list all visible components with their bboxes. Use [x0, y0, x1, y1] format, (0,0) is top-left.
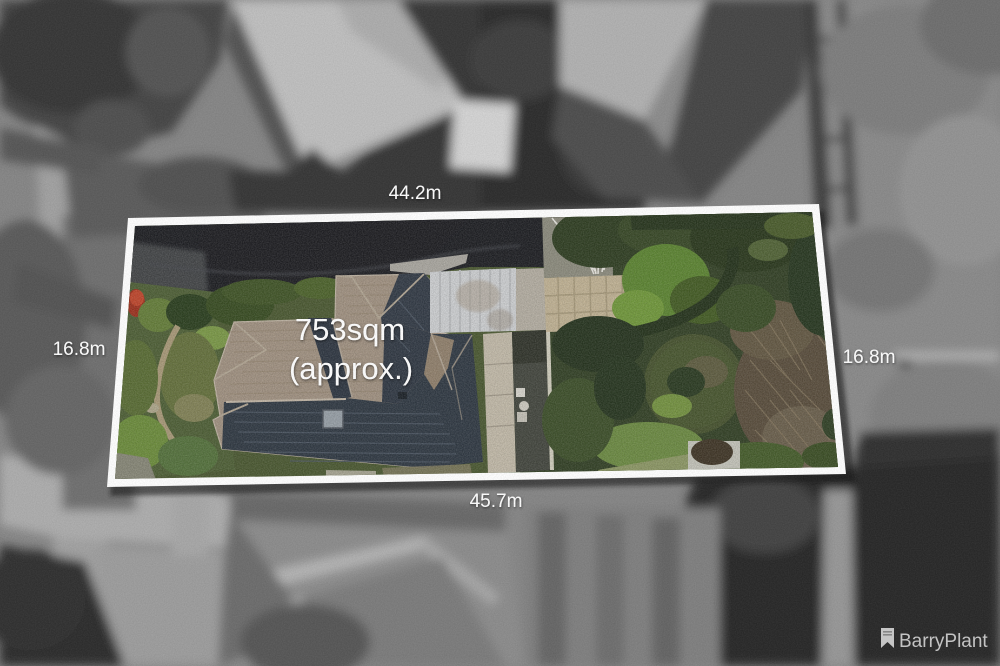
svg-text:BarryPlant: BarryPlant — [899, 631, 988, 652]
